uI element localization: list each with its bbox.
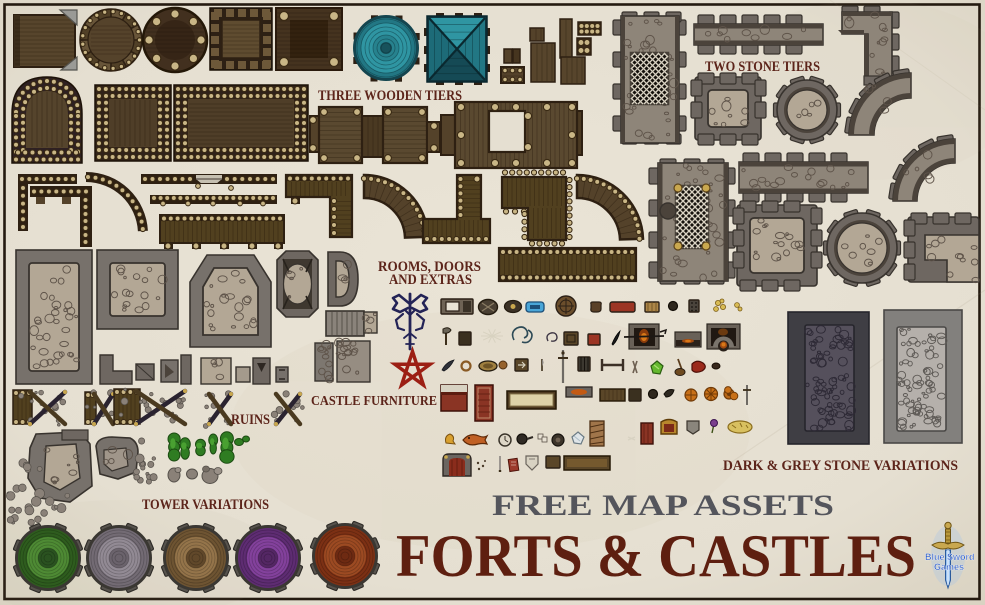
svg-text:TOWER VARIATIONS: TOWER VARIATIONS	[142, 497, 269, 513]
svg-text:CASTLE FURNITURE: CASTLE FURNITURE	[311, 394, 437, 409]
svg-text:THREE WOODEN TIERS: THREE WOODEN TIERS	[318, 88, 462, 104]
svg-text:DARK & GREY STONE VARIATIONS: DARK & GREY STONE VARIATIONS	[723, 458, 958, 474]
svg-text:Games: Games	[934, 562, 964, 572]
svg-text:AND EXTRAS: AND EXTRAS	[389, 272, 472, 288]
svg-text:FORTS & CASTLES: FORTS & CASTLES	[396, 523, 916, 589]
svg-text:FREE MAP ASSETS: FREE MAP ASSETS	[492, 490, 834, 522]
svg-text:RUINS: RUINS	[231, 412, 270, 428]
svg-text:Blue Sword: Blue Sword	[925, 552, 975, 562]
